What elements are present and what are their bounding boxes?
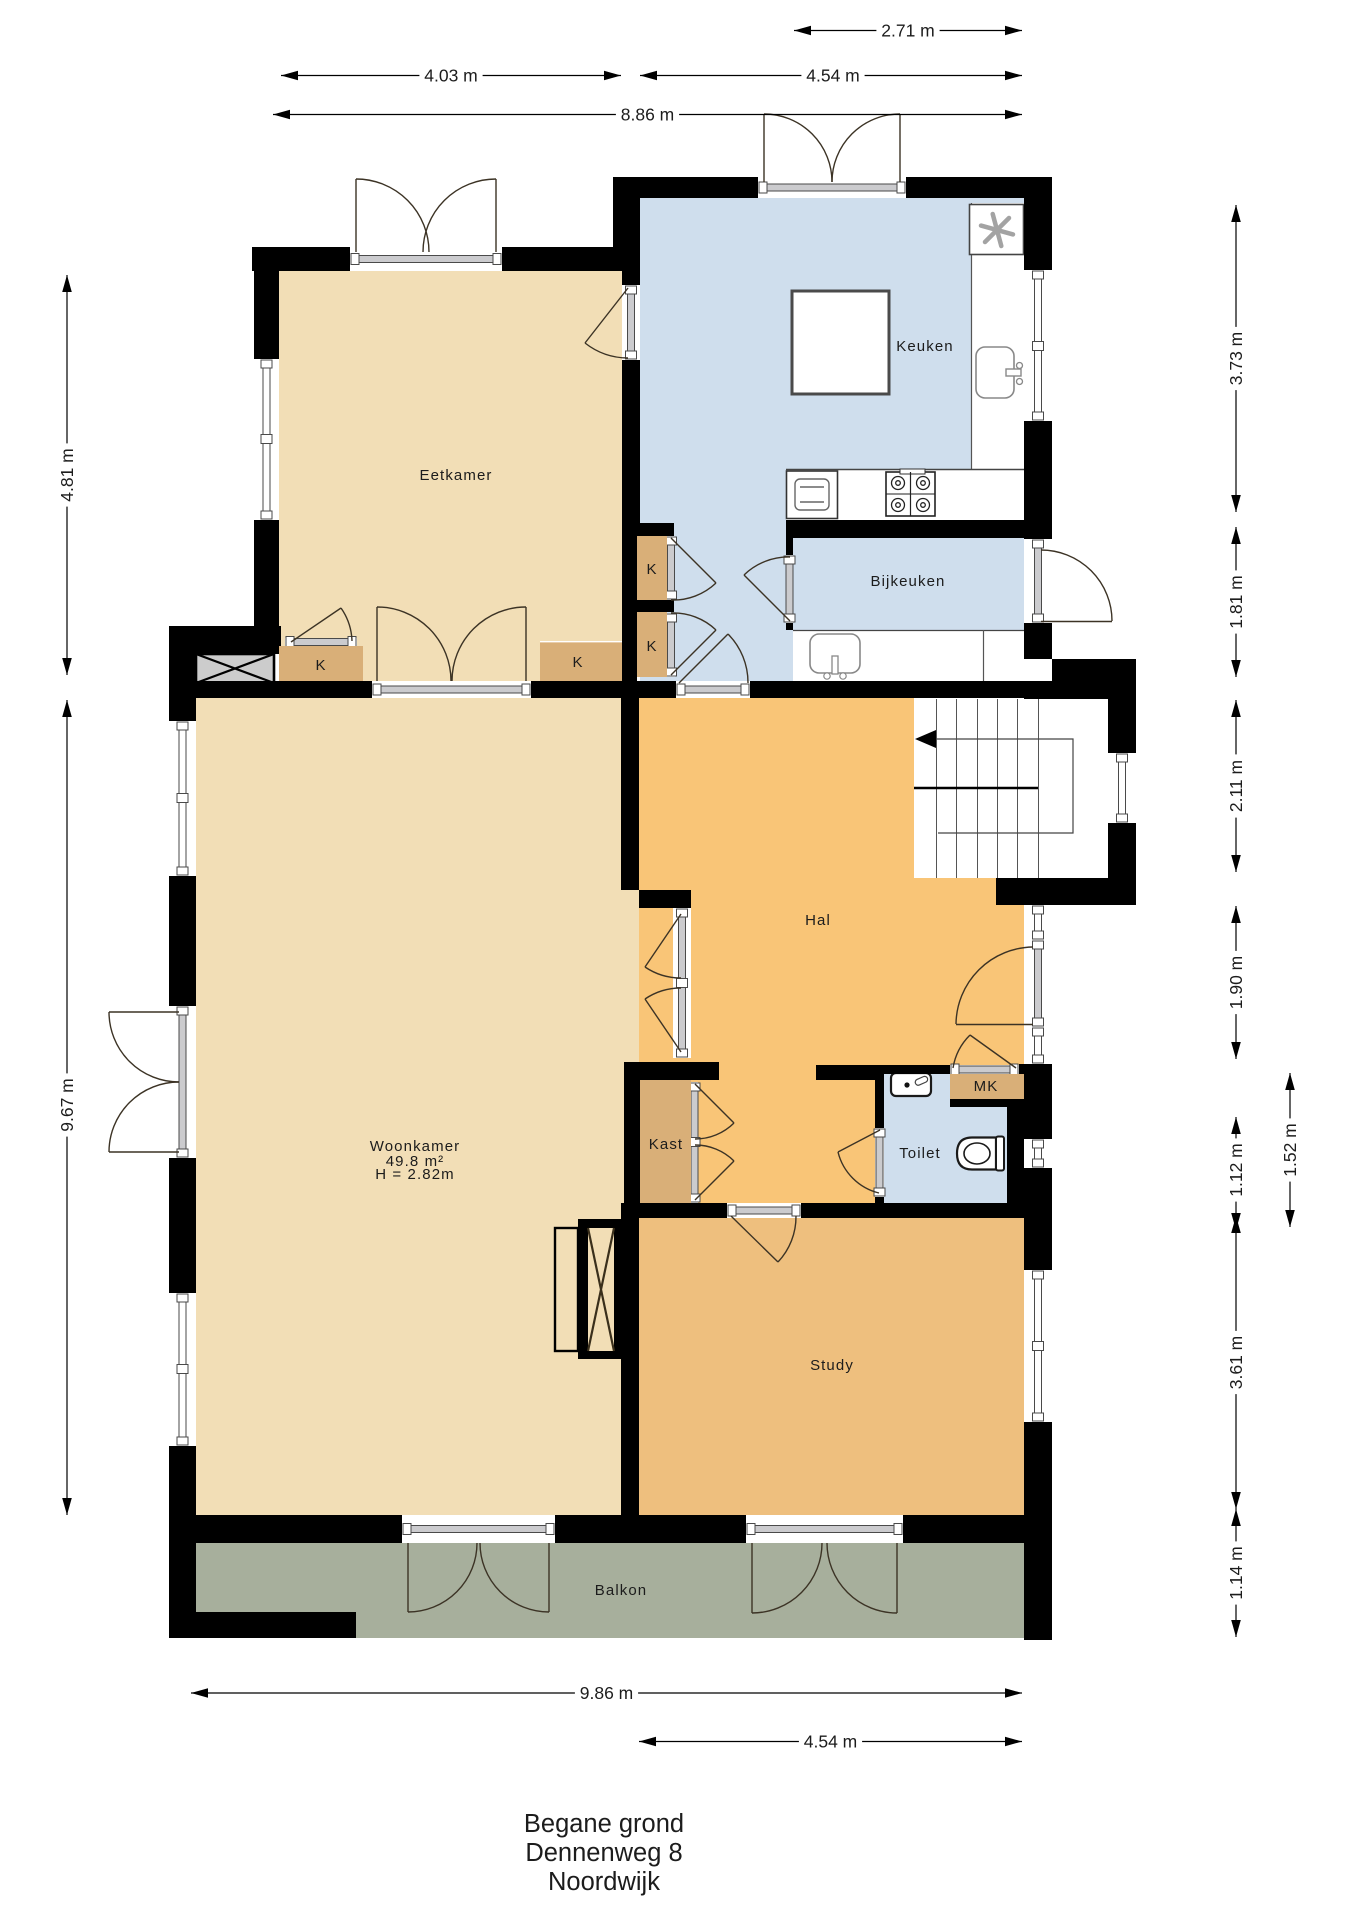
svg-text:Dennenweg 8: Dennenweg 8 xyxy=(525,1839,682,1867)
svg-text:8.86 m: 8.86 m xyxy=(621,104,675,124)
svg-text:9.67 m: 9.67 m xyxy=(57,1078,77,1132)
svg-text:1.90 m: 1.90 m xyxy=(1226,956,1246,1010)
svg-text:9.86 m: 9.86 m xyxy=(580,1683,634,1703)
svg-text:K: K xyxy=(646,561,657,578)
svg-text:1.14 m: 1.14 m xyxy=(1226,1546,1246,1600)
svg-text:Noordwijk: Noordwijk xyxy=(548,1868,660,1896)
svg-text:3.73 m: 3.73 m xyxy=(1226,332,1246,386)
svg-text:Kast: Kast xyxy=(649,1136,683,1153)
svg-text:Balkon: Balkon xyxy=(595,1582,647,1599)
svg-text:1.52 m: 1.52 m xyxy=(1280,1123,1300,1177)
svg-text:Keuken: Keuken xyxy=(896,338,953,355)
svg-text:Bijkeuken: Bijkeuken xyxy=(871,573,946,590)
svg-text:2.11 m: 2.11 m xyxy=(1226,760,1246,812)
svg-text:3.61 m: 3.61 m xyxy=(1226,1336,1246,1390)
svg-text:K: K xyxy=(646,638,657,655)
svg-text:2.71 m: 2.71 m xyxy=(881,20,935,40)
svg-text:Study: Study xyxy=(810,1357,854,1374)
svg-text:K: K xyxy=(315,657,326,674)
svg-text:MK: MK xyxy=(974,1078,999,1095)
svg-text:Begane grond: Begane grond xyxy=(524,1810,684,1838)
svg-text:4.54 m: 4.54 m xyxy=(806,65,860,85)
svg-text:Hal: Hal xyxy=(805,912,831,929)
svg-text:K: K xyxy=(572,654,583,671)
svg-text:4.54 m: 4.54 m xyxy=(804,1731,858,1751)
svg-text:Toilet: Toilet xyxy=(899,1145,941,1162)
svg-text:1.81 m: 1.81 m xyxy=(1226,575,1246,629)
svg-text:1.12 m: 1.12 m xyxy=(1226,1143,1246,1197)
svg-text:Eetkamer: Eetkamer xyxy=(420,467,493,484)
svg-text:4.81 m: 4.81 m xyxy=(57,448,77,502)
svg-text:H = 2.82m: H = 2.82m xyxy=(375,1166,455,1183)
svg-text:4.03 m: 4.03 m xyxy=(424,65,478,85)
